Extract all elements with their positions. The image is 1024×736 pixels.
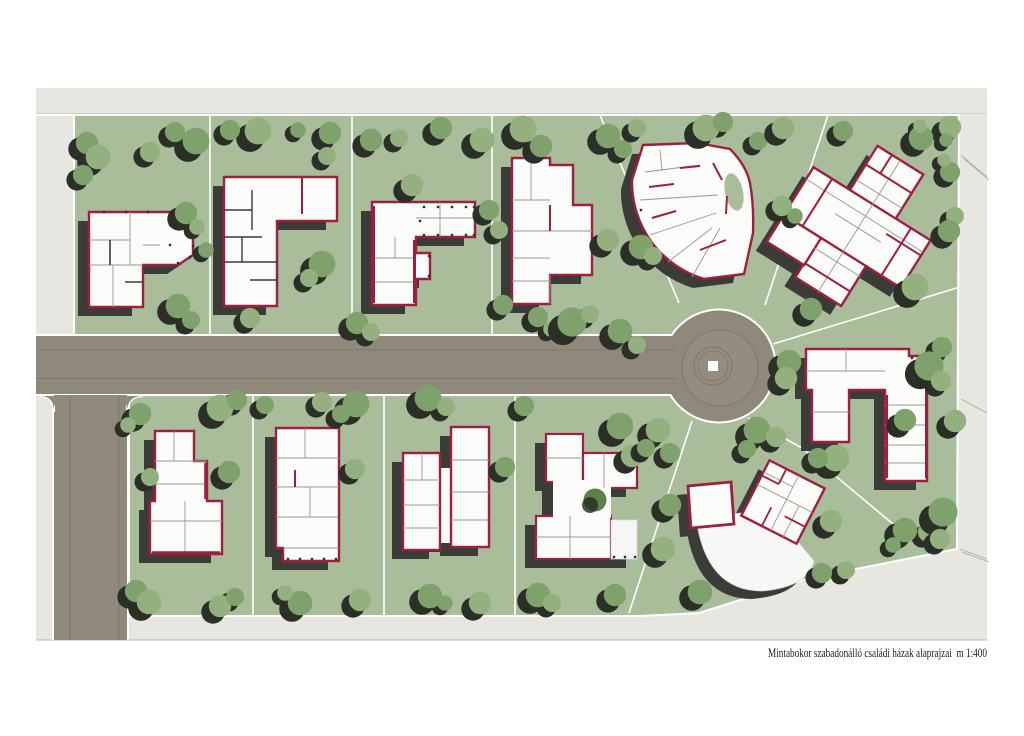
svg-text:Mintabokor szabadonálló család: Mintabokor szabadonálló családi házak al… xyxy=(768,645,987,660)
